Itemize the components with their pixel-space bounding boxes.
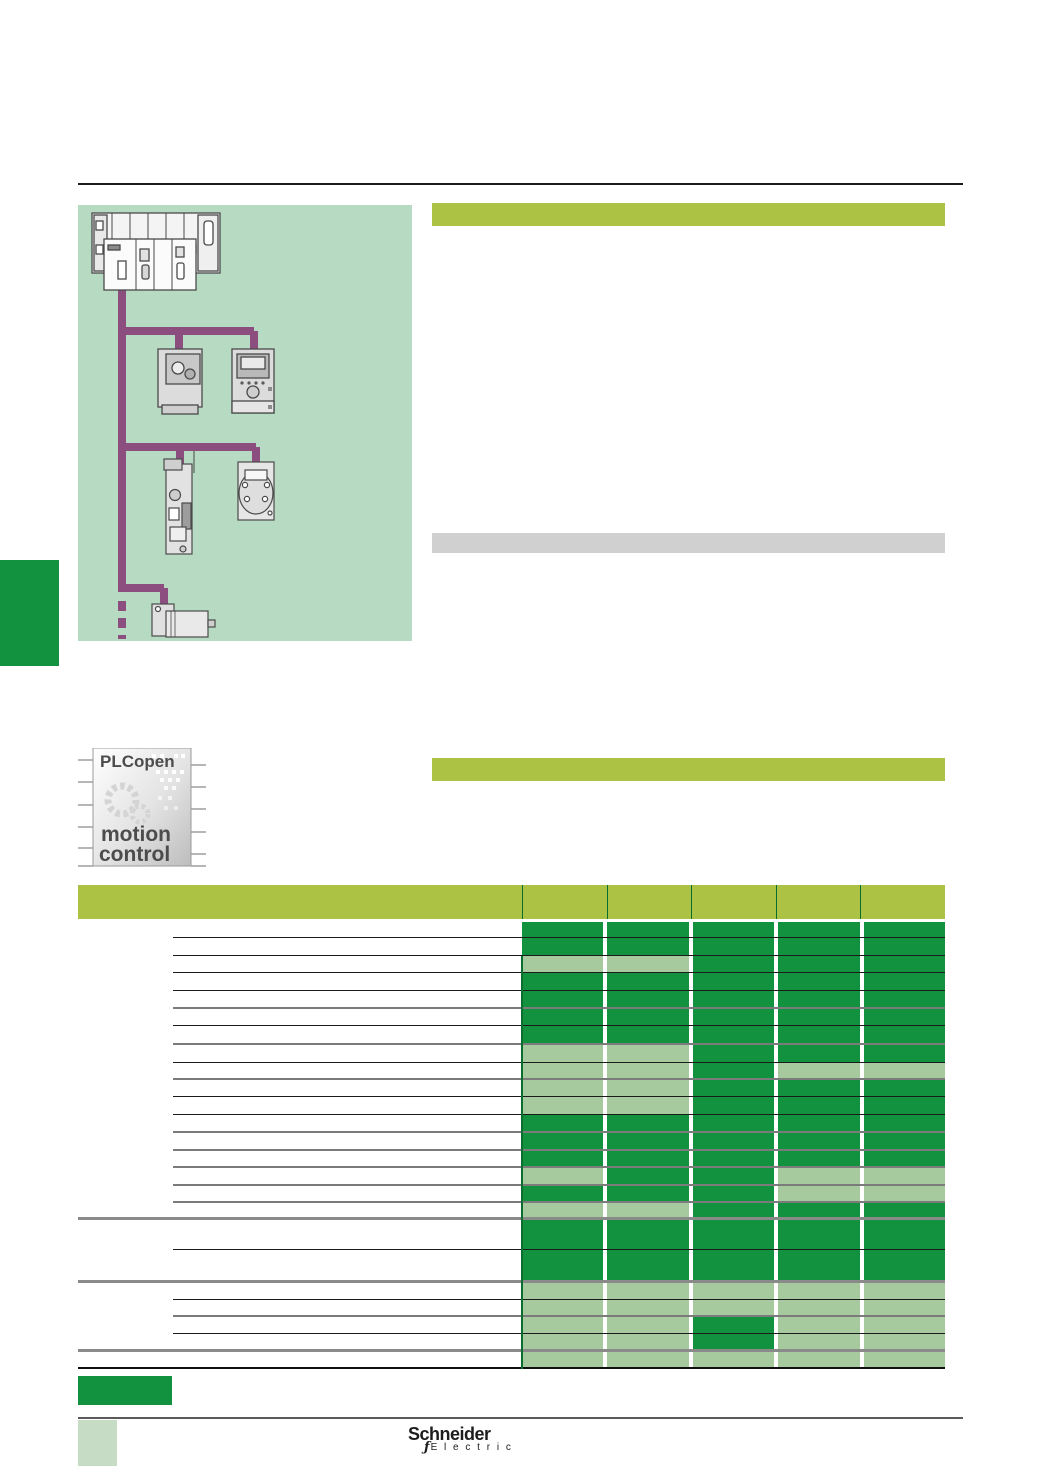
feature-cell-light xyxy=(603,1080,688,1097)
row-label-cell xyxy=(78,1220,522,1250)
feature-cell-dark xyxy=(774,1009,859,1026)
feature-cell-dark xyxy=(522,938,603,956)
table-row-24 xyxy=(78,1352,945,1369)
footer-divider xyxy=(78,1417,963,1419)
table-row-13 xyxy=(78,1133,945,1151)
feature-cell-dark xyxy=(522,922,603,938)
row-rule-thin xyxy=(173,937,945,938)
feature-cell-dark xyxy=(603,973,688,991)
row-rule-thick xyxy=(173,1166,945,1168)
row-rule-section xyxy=(78,1280,945,1283)
feature-cell-dark xyxy=(774,1250,859,1283)
feature-cell-dark xyxy=(522,1250,603,1283)
feature-cell-light xyxy=(522,1045,603,1063)
feature-cell-light xyxy=(603,1097,688,1115)
row-rule-thick xyxy=(173,1149,945,1151)
feature-cell-dark xyxy=(603,1009,688,1026)
feature-cell-dark xyxy=(603,922,688,938)
feature-cell-dark xyxy=(689,973,774,991)
row-rule-thin xyxy=(173,1299,945,1300)
feature-cell-dark xyxy=(860,1097,945,1115)
feature-cell-dark xyxy=(689,956,774,973)
feature-cell-dark xyxy=(774,1080,859,1097)
table-row-16 xyxy=(78,1186,945,1203)
feature-cell-dark xyxy=(860,938,945,956)
table-row-15 xyxy=(78,1168,945,1186)
row-rule-thin xyxy=(173,972,945,973)
reference-badge xyxy=(78,1376,172,1405)
row-rule-thick xyxy=(173,1043,945,1045)
row-label-cell xyxy=(78,1045,522,1063)
table-row-8 xyxy=(78,1045,945,1063)
schneider-electric-logo: Schneider ƒE l e c t r i c xyxy=(408,1426,548,1458)
drive-icon-2 xyxy=(232,349,274,413)
row-label-cell xyxy=(78,1097,522,1115)
table-row-9 xyxy=(78,1063,945,1080)
feature-cell-light xyxy=(860,1317,945,1334)
feature-cell-dark xyxy=(689,922,774,938)
table-row-22 xyxy=(78,1317,945,1334)
table-row-3 xyxy=(78,956,945,973)
row-rule-thick xyxy=(173,1131,945,1133)
row-rule-thick xyxy=(173,1315,945,1317)
row-label-cell xyxy=(78,1009,522,1026)
table-row-12 xyxy=(78,1115,945,1133)
plcopen-motion-control-logo: PLCopen motion control xyxy=(78,748,206,868)
catalog-page: PLCopen motion control Schneider ƒE l e … xyxy=(0,0,1041,1472)
row-rule-thin xyxy=(173,1025,945,1026)
table-row-2 xyxy=(78,938,945,956)
feature-cell-dark xyxy=(603,1250,688,1283)
table-row-20 xyxy=(78,1283,945,1300)
feature-cell-dark xyxy=(774,956,859,973)
header-label-cell xyxy=(78,885,522,919)
feature-cell-light xyxy=(860,1283,945,1300)
row-rule-thick xyxy=(173,1007,945,1009)
feature-cell-light xyxy=(522,1317,603,1334)
feature-cell-dark xyxy=(689,1317,774,1334)
feature-cell-dark xyxy=(774,1045,859,1063)
feature-cell-dark xyxy=(860,1045,945,1063)
plcopen-wordmark: PLCopen xyxy=(100,752,175,771)
row-rule-thick xyxy=(173,1201,945,1203)
table-row-1 xyxy=(78,922,945,938)
table-row-6 xyxy=(78,1009,945,1026)
feature-cell-dark xyxy=(774,973,859,991)
table-left-edge-line xyxy=(521,956,523,1369)
feature-cell-light xyxy=(522,1097,603,1115)
table-row-21 xyxy=(78,1300,945,1317)
row-rule-thick xyxy=(173,1078,945,1080)
feature-cell-dark xyxy=(522,973,603,991)
column-header-4 xyxy=(776,885,861,919)
system-overview-panel xyxy=(78,205,412,641)
feature-table-body xyxy=(78,922,945,1369)
feature-cell-light xyxy=(522,1283,603,1300)
row-label-cell xyxy=(78,1080,522,1097)
remote-device-icon xyxy=(238,462,274,520)
column-header-3 xyxy=(691,885,776,919)
feature-cell-dark xyxy=(689,1097,774,1115)
feature-cell-dark xyxy=(860,1220,945,1250)
row-label-cell xyxy=(78,973,522,991)
feature-cell-dark xyxy=(860,1250,945,1283)
feature-cell-dark xyxy=(689,1220,774,1250)
network-bus-lines xyxy=(122,283,256,639)
row-label-cell xyxy=(78,1283,522,1300)
feature-cell-dark xyxy=(689,938,774,956)
row-rule-thin xyxy=(173,1333,945,1334)
system-overview-illustration xyxy=(78,205,412,641)
table-row-7 xyxy=(78,1026,945,1045)
table-row-19 xyxy=(78,1250,945,1283)
row-rule-thin xyxy=(173,1062,945,1063)
feature-cell-dark xyxy=(774,922,859,938)
feature-cell-dark xyxy=(603,938,688,956)
row-label-cell xyxy=(78,938,522,956)
feature-cell-dark xyxy=(774,1220,859,1250)
table-row-10 xyxy=(78,1080,945,1097)
table-row-18 xyxy=(78,1220,945,1250)
section-header-bar-functions xyxy=(432,758,945,781)
control-wordmark: control xyxy=(99,843,170,866)
feature-cell-light xyxy=(522,956,603,973)
row-rule-section xyxy=(78,1349,945,1352)
table-row-23 xyxy=(78,1334,945,1352)
row-label-cell xyxy=(78,1317,522,1334)
feature-table xyxy=(78,885,945,1369)
table-row-11 xyxy=(78,1097,945,1115)
page-edge-tab xyxy=(0,560,59,666)
column-header-5 xyxy=(860,885,945,919)
feature-cell-dark xyxy=(774,938,859,956)
feature-cell-dark xyxy=(860,1080,945,1097)
row-rule-thin xyxy=(173,955,945,956)
row-rule-bottom xyxy=(78,1367,945,1369)
row-rule-thin xyxy=(173,1096,945,1097)
table-row-14 xyxy=(78,1151,945,1168)
feature-cell-dark xyxy=(522,1220,603,1250)
feature-cell-light xyxy=(603,1045,688,1063)
feature-cell-light xyxy=(522,1080,603,1097)
feature-cell-light xyxy=(774,1283,859,1300)
plc-rack-icon xyxy=(92,213,220,290)
row-label-cell xyxy=(78,956,522,973)
schneider-glyph-icon: ƒ xyxy=(424,1442,430,1453)
row-rule-section xyxy=(78,1217,945,1220)
feature-cell-dark xyxy=(603,1220,688,1250)
top-divider xyxy=(78,183,963,185)
feature-cell-dark xyxy=(860,973,945,991)
section-header-bar-presentation xyxy=(432,203,945,226)
row-rule-thin xyxy=(173,1114,945,1115)
feature-cell-light xyxy=(603,1317,688,1334)
row-label-cell xyxy=(78,1250,522,1283)
feature-cell-light xyxy=(603,956,688,973)
feature-cell-dark xyxy=(860,1009,945,1026)
column-header-2 xyxy=(607,885,692,919)
drive-icon-1 xyxy=(158,349,202,414)
feature-cell-dark xyxy=(522,1009,603,1026)
feature-table-header xyxy=(78,885,945,919)
footer-page-tab xyxy=(78,1420,117,1466)
feature-cell-dark xyxy=(689,1250,774,1283)
row-label-cell xyxy=(78,922,522,938)
feature-cell-light xyxy=(603,1283,688,1300)
electric-wordmark: ƒE l e c t r i c xyxy=(424,1442,548,1453)
table-row-4 xyxy=(78,973,945,991)
feature-cell-dark xyxy=(689,1045,774,1063)
table-row-5 xyxy=(78,991,945,1009)
feature-cell-light xyxy=(774,1317,859,1334)
feature-cell-dark xyxy=(689,1080,774,1097)
feature-cell-dark xyxy=(689,1009,774,1026)
feature-cell-dark xyxy=(860,922,945,938)
table-row-17 xyxy=(78,1203,945,1220)
feature-cell-dark xyxy=(774,1097,859,1115)
row-rule-thin xyxy=(173,1249,945,1250)
row-rule-thin xyxy=(173,990,945,991)
servo-drive-icon xyxy=(164,451,194,554)
feature-cell-dark xyxy=(860,956,945,973)
row-rule-thick xyxy=(173,1184,945,1186)
section-subheader-bar xyxy=(432,533,945,553)
feature-cell-light xyxy=(689,1283,774,1300)
servo-motor-icon xyxy=(152,604,215,637)
column-header-1 xyxy=(522,885,607,919)
